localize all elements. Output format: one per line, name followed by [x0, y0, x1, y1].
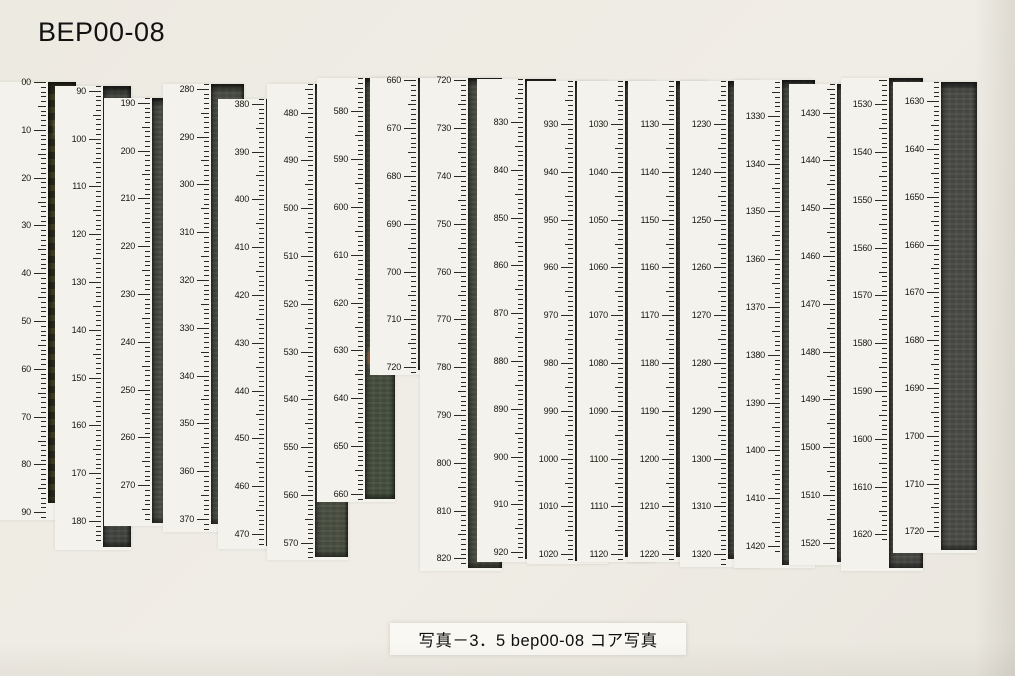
ruler-tick: [41, 101, 46, 102]
depth-label: 90: [76, 86, 86, 96]
ruler-tick: [934, 288, 939, 289]
depth-ruler: 720730740750760770780790800810820: [420, 78, 466, 563]
ruler-tick: [618, 377, 623, 378]
depth-ruler: 280290300310320330340350360370: [163, 84, 209, 529]
ruler-tick: [145, 131, 150, 132]
ruler-tick: [669, 191, 674, 192]
ruler-tick: [827, 232, 835, 233]
ruler-tick: [204, 132, 209, 133]
ruler-tick: [358, 408, 363, 409]
ruler-tick: [830, 98, 835, 99]
ruler-tick: [41, 92, 46, 93]
ruler-tick: [518, 175, 523, 176]
ruler-tick: [669, 134, 674, 135]
ruler-tick: [561, 315, 573, 316]
ruler-tick: [351, 255, 363, 256]
ruler-tick: [718, 483, 726, 484]
ruler-tick: [518, 136, 523, 137]
ruler-tick: [666, 530, 674, 531]
depth-label: 820: [437, 553, 451, 563]
ruler-tick: [830, 132, 835, 133]
ruler-tick: [204, 285, 209, 286]
ruler-tick: [145, 490, 150, 491]
ruler-tick: [458, 200, 466, 201]
ruler-tick: [775, 527, 780, 528]
ruler-tick: [515, 194, 523, 195]
ruler-tick: [41, 221, 46, 222]
ruler-tick: [518, 418, 523, 419]
depth-label: 80: [21, 459, 31, 469]
ruler-tick: [721, 129, 726, 130]
ruler-tick: [301, 113, 313, 114]
depth-ruler: 1030104010501060107010801090110011101120: [577, 81, 623, 559]
ruler-tick: [41, 335, 46, 336]
ruler-tick: [411, 238, 416, 239]
ruler-tick: [882, 429, 887, 430]
ruler-tick: [721, 511, 726, 512]
ruler-tick: [252, 534, 264, 535]
ruler-tick: [934, 512, 939, 513]
ruler-tick: [461, 530, 466, 531]
ruler-tick: [411, 85, 416, 86]
ruler-tick: [666, 291, 674, 292]
ruler-tick: [351, 159, 363, 160]
ruler-tick: [669, 181, 674, 182]
depth-label: 430: [235, 338, 249, 348]
ruler-tick: [461, 496, 466, 497]
ruler-tick: [411, 339, 416, 340]
ruler-tick: [934, 163, 939, 164]
ruler-tick: [882, 377, 887, 378]
ruler-tick: [252, 104, 264, 105]
ruler-tick: [411, 291, 416, 292]
ruler-tick: [618, 373, 623, 374]
ruler-tick: [461, 85, 466, 86]
depth-label: 320: [180, 275, 194, 285]
ruler-tick: [358, 379, 363, 380]
ruler-tick: [721, 430, 726, 431]
ruler-tick: [458, 104, 466, 105]
ruler-tick: [96, 292, 101, 293]
ruler-tick: [568, 416, 573, 417]
ruler-tick: [358, 322, 363, 323]
depth-label: 1450: [801, 203, 820, 213]
depth-ruler: 660670680690700710720: [370, 78, 416, 372]
ruler-tick: [461, 468, 466, 469]
ruler-tick: [96, 315, 101, 316]
ruler-tick: [256, 367, 264, 368]
ruler-tick: [197, 376, 209, 377]
ruler-tick: [355, 422, 363, 423]
ruler-tick: [934, 311, 939, 312]
ruler-tick: [830, 151, 835, 152]
ruler-tick: [41, 163, 46, 164]
ruler-tick: [411, 229, 416, 230]
ruler-tick: [308, 223, 313, 224]
ruler-tick: [308, 117, 313, 118]
ruler-tick: [882, 539, 887, 540]
ruler-tick: [518, 390, 523, 391]
ruler-tick: [201, 304, 209, 305]
ruler-tick: [618, 181, 623, 182]
depth-label: 1130: [640, 119, 659, 129]
ruler-tick: [461, 396, 466, 397]
depth-label: 1030: [589, 119, 608, 129]
depth-label: 550: [284, 442, 298, 452]
ruler-tick: [934, 230, 939, 231]
ruler-tick: [259, 123, 264, 124]
ruler-tick: [934, 522, 939, 523]
ruler-tick: [931, 221, 939, 222]
ruler-tick: [41, 168, 46, 169]
ruler-tick: [259, 190, 264, 191]
ruler-tick: [138, 390, 150, 391]
ruler-tick: [934, 426, 939, 427]
ruler-tick: [308, 509, 313, 510]
ruler-tick: [830, 323, 835, 324]
ruler-tick: [308, 251, 313, 252]
depth-label: 700: [387, 267, 401, 277]
ruler-tick: [411, 358, 416, 359]
ruler-tick: [145, 241, 150, 242]
ruler-tick: [775, 536, 780, 537]
ruler-tick: [721, 95, 726, 96]
depth-label: 900: [494, 452, 508, 462]
ruler-tick: [669, 516, 674, 517]
ruler-tick: [145, 265, 150, 266]
ruler-tick: [669, 478, 674, 479]
ruler-tick: [41, 144, 46, 145]
ruler-tick: [568, 110, 573, 111]
ruler-tick: [259, 448, 264, 449]
ruler-tick: [775, 288, 780, 289]
ruler-tick: [934, 474, 939, 475]
ruler-tick: [669, 81, 674, 82]
ruler-tick: [145, 194, 150, 195]
ruler-tick: [145, 108, 150, 109]
ruler-tick: [408, 104, 416, 105]
ruler-tick: [256, 414, 264, 415]
ruler-tick: [882, 133, 887, 134]
ruler-tick: [721, 263, 726, 264]
depth-label: 1150: [640, 215, 659, 225]
ruler-tick: [879, 224, 887, 225]
ruler-tick: [204, 323, 209, 324]
ruler-tick: [89, 330, 101, 331]
ruler-tick: [518, 371, 523, 372]
ruler-tick: [308, 318, 313, 319]
depth-label: 790: [437, 410, 451, 420]
ruler-tick: [669, 344, 674, 345]
ruler-tick: [259, 524, 264, 525]
ruler-tick: [411, 281, 416, 282]
ruler-tick: [775, 293, 780, 294]
ruler-tick: [669, 521, 674, 522]
ruler-tick: [461, 310, 466, 311]
ruler-tick: [721, 157, 726, 158]
ruler-tick: [461, 372, 466, 373]
ruler-tick: [775, 374, 780, 375]
ruler-tick: [565, 244, 573, 245]
ruler-tick: [358, 427, 363, 428]
ruler-tick: [775, 130, 780, 131]
ruler-tick: [568, 420, 573, 421]
ruler-tick: [768, 403, 780, 404]
ruler-tick: [96, 325, 101, 326]
ruler-tick: [568, 545, 573, 546]
ruler-tick: [259, 324, 264, 325]
ruler-tick: [41, 240, 46, 241]
ruler-tick: [41, 235, 46, 236]
ruler-tick: [875, 152, 887, 153]
ruler-tick: [41, 245, 46, 246]
ruler-tick: [882, 229, 887, 230]
ruler-tick: [411, 205, 416, 206]
ruler-tick: [259, 381, 264, 382]
ruler-tick: [96, 177, 101, 178]
ruler-tick: [358, 499, 363, 500]
ruler-tick: [461, 291, 466, 292]
ruler-tick: [518, 179, 523, 180]
ruler-tick: [669, 320, 674, 321]
ruler-tick: [568, 167, 573, 168]
ruler-tick: [775, 226, 780, 227]
ruler-tick: [721, 349, 726, 350]
ruler-tick: [145, 380, 150, 381]
ruler-tick: [461, 491, 466, 492]
ruler-tick: [197, 232, 209, 233]
ruler-tick: [721, 487, 726, 488]
ruler-tick: [305, 280, 313, 281]
ruler-tick: [775, 264, 780, 265]
ruler-tick: [830, 428, 835, 429]
ruler-tick: [518, 308, 523, 309]
ruler-tick: [775, 154, 780, 155]
depth-label: 370: [180, 514, 194, 524]
ruler-tick: [461, 377, 466, 378]
ruler-tick: [934, 383, 939, 384]
ruler-tick: [618, 368, 623, 369]
ruler-tick: [96, 430, 101, 431]
ruler-tick: [461, 209, 466, 210]
ruler-tick: [568, 430, 573, 431]
depth-ruler: 930940950960970980990100010101020: [527, 81, 573, 559]
ruler-tick: [308, 132, 313, 133]
ruler-tick: [308, 275, 313, 276]
ruler-tick: [775, 431, 780, 432]
depth-label: 420: [235, 290, 249, 300]
ruler-tick: [931, 364, 939, 365]
ruler-tick: [461, 544, 466, 545]
ruler-tick: [568, 468, 573, 469]
depth-label: 1220: [640, 549, 659, 559]
ruler-tick: [721, 105, 726, 106]
ruler-tick: [618, 521, 623, 522]
ruler-tick: [882, 353, 887, 354]
ruler-tick: [775, 192, 780, 193]
ruler-tick: [518, 232, 523, 233]
ruler-tick: [568, 559, 573, 560]
ruler-tick: [669, 454, 674, 455]
ruler-tick: [259, 467, 264, 468]
ruler-tick: [358, 331, 363, 332]
ruler-tick: [518, 270, 523, 271]
depth-label: 510: [284, 251, 298, 261]
ruler-tick: [145, 98, 150, 99]
ruler-tick: [568, 463, 573, 464]
ruler-tick: [308, 213, 313, 214]
depth-label: 540: [284, 394, 298, 404]
ruler-tick: [934, 431, 939, 432]
ruler-tick: [204, 318, 209, 319]
ruler-tick: [934, 182, 939, 183]
ruler-tick: [934, 92, 939, 93]
ruler-tick: [204, 476, 209, 477]
ruler-tick: [518, 490, 523, 491]
ruler-tick: [772, 92, 780, 93]
ruler-tick: [259, 180, 264, 181]
ruler-tick: [775, 97, 780, 98]
ruler-tick: [511, 504, 523, 505]
ruler-tick: [308, 433, 313, 434]
ruler-tick: [461, 305, 466, 306]
ruler-tick: [775, 102, 780, 103]
ruler-tick: [89, 91, 101, 92]
ruler-tick: [830, 294, 835, 295]
ruler-tick: [96, 96, 101, 97]
depth-label: 1250: [692, 215, 711, 225]
ruler-tick: [518, 112, 523, 113]
ruler-tick: [934, 168, 939, 169]
ruler-tick: [145, 500, 150, 501]
ruler-tick: [775, 489, 780, 490]
ruler-tick: [721, 191, 726, 192]
ruler-tick: [145, 452, 150, 453]
ruler-tick: [931, 316, 939, 317]
ruler-tick: [259, 443, 264, 444]
ruler-tick: [404, 319, 416, 320]
ruler-tick: [823, 495, 835, 496]
ruler-tick: [511, 313, 523, 314]
ruler-tick: [41, 187, 46, 188]
ruler-tick: [351, 398, 363, 399]
ruler-tick: [934, 115, 939, 116]
ruler-tick: [718, 244, 726, 245]
ruler-tick: [96, 373, 101, 374]
ruler-tick: [308, 524, 313, 525]
depth-label: 1400: [746, 445, 765, 455]
ruler-tick: [882, 491, 887, 492]
ruler-tick: [618, 535, 623, 536]
ruler-tick: [518, 237, 523, 238]
ruler-tick: [927, 197, 939, 198]
ruler-tick: [411, 100, 416, 101]
ruler-tick: [568, 201, 573, 202]
ruler-tick: [308, 313, 313, 314]
ruler-tick: [259, 544, 264, 545]
ruler-tick: [934, 302, 939, 303]
ruler-tick: [518, 285, 523, 286]
ruler-tick: [308, 395, 313, 396]
ruler-tick: [461, 162, 466, 163]
ruler-tick: [714, 267, 726, 268]
ruler-tick: [568, 516, 573, 517]
ruler-tick: [669, 105, 674, 106]
ruler-tick: [96, 483, 101, 484]
ruler-tick: [875, 248, 887, 249]
ruler-tick: [96, 311, 101, 312]
ruler-tick: [411, 109, 416, 110]
ruler-tick: [308, 347, 313, 348]
ruler-tick: [408, 200, 416, 201]
ruler-tick: [721, 468, 726, 469]
depth-label: 10: [21, 125, 31, 135]
ruler-tick: [308, 337, 313, 338]
ruler-tick: [41, 288, 46, 289]
ruler-tick: [830, 84, 835, 85]
ruler-tick: [461, 324, 466, 325]
ruler-tick: [355, 135, 363, 136]
ruler-tick: [96, 249, 101, 250]
depth-label: 1510: [801, 490, 820, 500]
ruler-tick: [934, 369, 939, 370]
depth-ruler: 90100110120130140150160170180: [55, 86, 101, 540]
depth-label: 180: [72, 516, 86, 526]
ruler-tick: [145, 117, 150, 118]
ruler-tick: [358, 202, 363, 203]
ruler-tick: [721, 91, 726, 92]
ruler-tick: [927, 149, 939, 150]
ruler-tick: [721, 358, 726, 359]
ruler-tick: [308, 156, 313, 157]
ruler-tick: [775, 412, 780, 413]
depth-label: 1630: [905, 96, 924, 106]
ruler-tick: [721, 492, 726, 493]
ruler-tick: [568, 440, 573, 441]
ruler-tick: [41, 450, 46, 451]
ruler-tick: [568, 138, 573, 139]
ruler-tick: [256, 462, 264, 463]
depth-label: 470: [235, 529, 249, 539]
ruler-tick: [772, 235, 780, 236]
ruler-tick: [461, 382, 466, 383]
ruler-tick: [408, 152, 416, 153]
ruler-tick: [411, 219, 416, 220]
ruler-tick: [830, 548, 835, 549]
ruler-tick: [830, 199, 835, 200]
ruler-tick: [830, 505, 835, 506]
ruler-tick: [882, 276, 887, 277]
ruler-tick: [96, 110, 101, 111]
depth-label: 760: [437, 267, 451, 277]
ruler-tick: [721, 526, 726, 527]
ruler-tick: [145, 280, 150, 281]
ruler-tick: [669, 310, 674, 311]
ruler-tick: [830, 414, 835, 415]
ruler-tick: [775, 465, 780, 466]
ruler-tick: [518, 347, 523, 348]
ruler-tick: [34, 225, 46, 226]
ruler-tick: [411, 157, 416, 158]
ruler-tick: [41, 455, 46, 456]
ruler-tick: [882, 329, 887, 330]
ruler-tick: [461, 425, 466, 426]
ruler-tick: [568, 344, 573, 345]
ruler-tick: [96, 358, 101, 359]
ruler-tick: [775, 106, 780, 107]
depth-label: 1530: [853, 99, 872, 109]
ruler-tick: [41, 350, 46, 351]
